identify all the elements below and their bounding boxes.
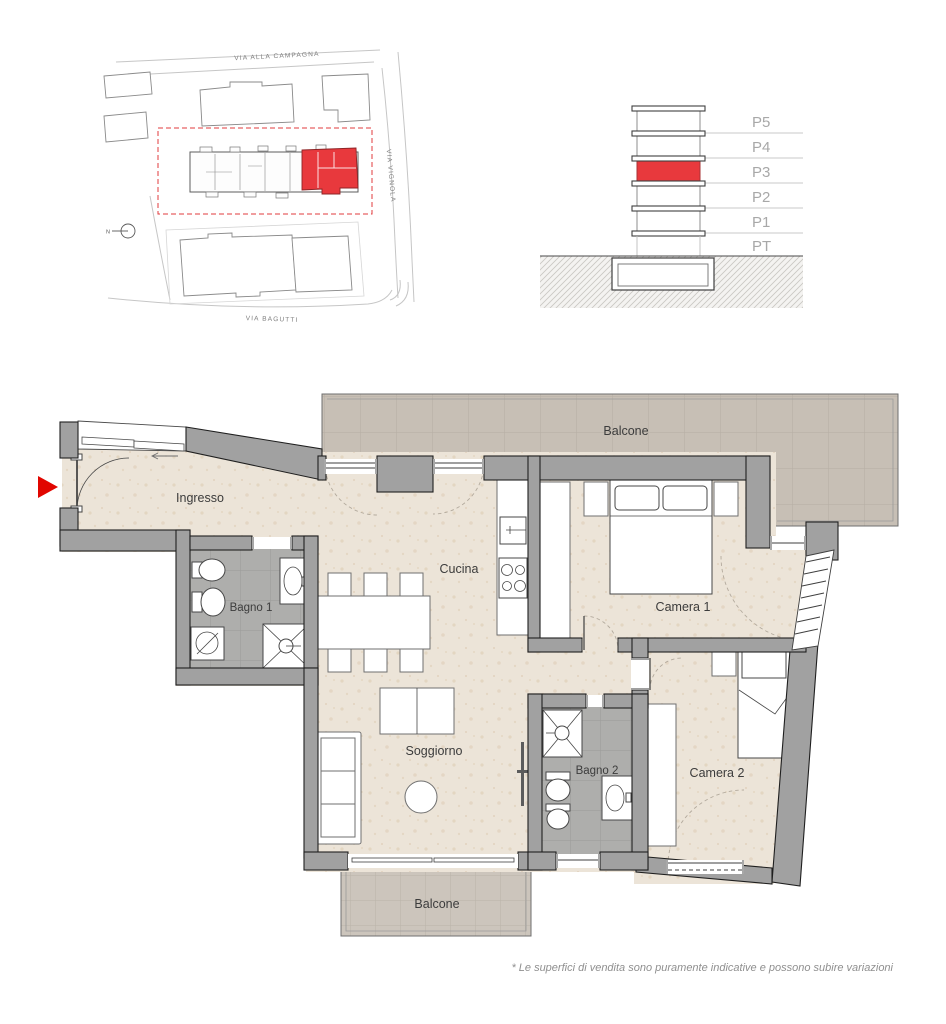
shower [543, 710, 582, 757]
bidet [546, 804, 570, 829]
toilet [192, 588, 225, 616]
street-label-bagutti: VIA BAGUTTI [246, 315, 299, 324]
pillow [742, 652, 786, 678]
nightstand [714, 482, 738, 516]
floor-label-p5: P5 [752, 114, 770, 131]
kitchen-sink [500, 517, 526, 544]
bidet [192, 559, 225, 581]
building-outline [104, 72, 152, 98]
floor-p2 [637, 186, 700, 206]
highlighted-unit [302, 148, 358, 194]
room-label-soggiorno: Soggiorno [406, 744, 463, 758]
nightstand [584, 482, 608, 516]
floor-label-pt: PT [752, 238, 771, 255]
floorplan-sheet: N VIA ALLA CAMPAGNA VIA VIGNOLA VIA BAGU… [0, 0, 946, 1024]
shower [263, 624, 309, 668]
window [770, 536, 806, 550]
room-label-camera2: Camera 2 [690, 766, 745, 780]
floor-label-p4: P4 [752, 139, 770, 156]
floor-label-p1: P1 [752, 214, 770, 231]
window [556, 854, 600, 868]
street-line [398, 52, 414, 302]
kitchen-counter [497, 480, 528, 635]
dining-table [315, 596, 430, 649]
floor-label-p2: P2 [752, 189, 770, 206]
door-opening [252, 537, 292, 549]
street-label-campagna: VIA ALLA CAMPAGNA [234, 51, 320, 62]
room-label-balcone-bottom: Balcone [414, 897, 459, 911]
dining-table-set [315, 573, 430, 672]
window [433, 459, 484, 474]
cooktop [499, 558, 527, 598]
north-label: N [106, 230, 110, 236]
street-label-vignola: VIA VIGNOLA [385, 149, 397, 203]
floor-p4 [637, 136, 700, 156]
building-outline [104, 112, 148, 142]
toilet [546, 772, 570, 801]
wardrobe [540, 482, 570, 640]
subject-building-footprint [190, 145, 358, 198]
building-outline [292, 236, 352, 292]
floor-label-p3: P3 [752, 164, 770, 181]
door-opening [631, 658, 650, 690]
room-label-bagno2: Bagno 2 [576, 765, 619, 777]
nightstand [712, 650, 736, 676]
floor-p3-highlighted [637, 161, 700, 181]
washing-machine [191, 627, 224, 660]
window [666, 860, 744, 874]
apartment-floor-plan: Balcone Ingresso Bagno 1 Cucina Camera 1… [38, 394, 898, 936]
entrance-arrow [38, 476, 58, 498]
building-outline [322, 74, 370, 122]
disclaimer-text: * Le superfici di vendita sono puramente… [511, 962, 893, 974]
pillow [663, 486, 707, 510]
site-plan-map: N VIA ALLA CAMPAGNA VIA VIGNOLA VIA BAGU… [104, 50, 414, 324]
sink [602, 776, 632, 820]
room-label-ingresso: Ingresso [176, 491, 224, 505]
pouf [405, 781, 437, 813]
room-label-balcone-top: Balcone [603, 424, 648, 438]
building-outline [200, 82, 294, 126]
floor-p5 [637, 111, 700, 131]
building-outline [180, 233, 296, 297]
floor-p1 [637, 211, 700, 231]
north-symbol: N [106, 224, 135, 238]
room-label-cucina: Cucina [440, 562, 479, 576]
pillow [615, 486, 659, 510]
room-label-bagno1: Bagno 1 [230, 602, 273, 614]
floorplan-drawing: N VIA ALLA CAMPAGNA VIA VIGNOLA VIA BAGU… [0, 0, 946, 1024]
door-opening [586, 695, 604, 707]
street-line [114, 62, 374, 76]
elevation-diagram: P5 P4 P3 P2 P1 PT [540, 106, 803, 308]
french-window [348, 854, 518, 868]
window [324, 459, 377, 474]
tv [521, 742, 524, 806]
room-label-camera1: Camera 1 [656, 600, 711, 614]
